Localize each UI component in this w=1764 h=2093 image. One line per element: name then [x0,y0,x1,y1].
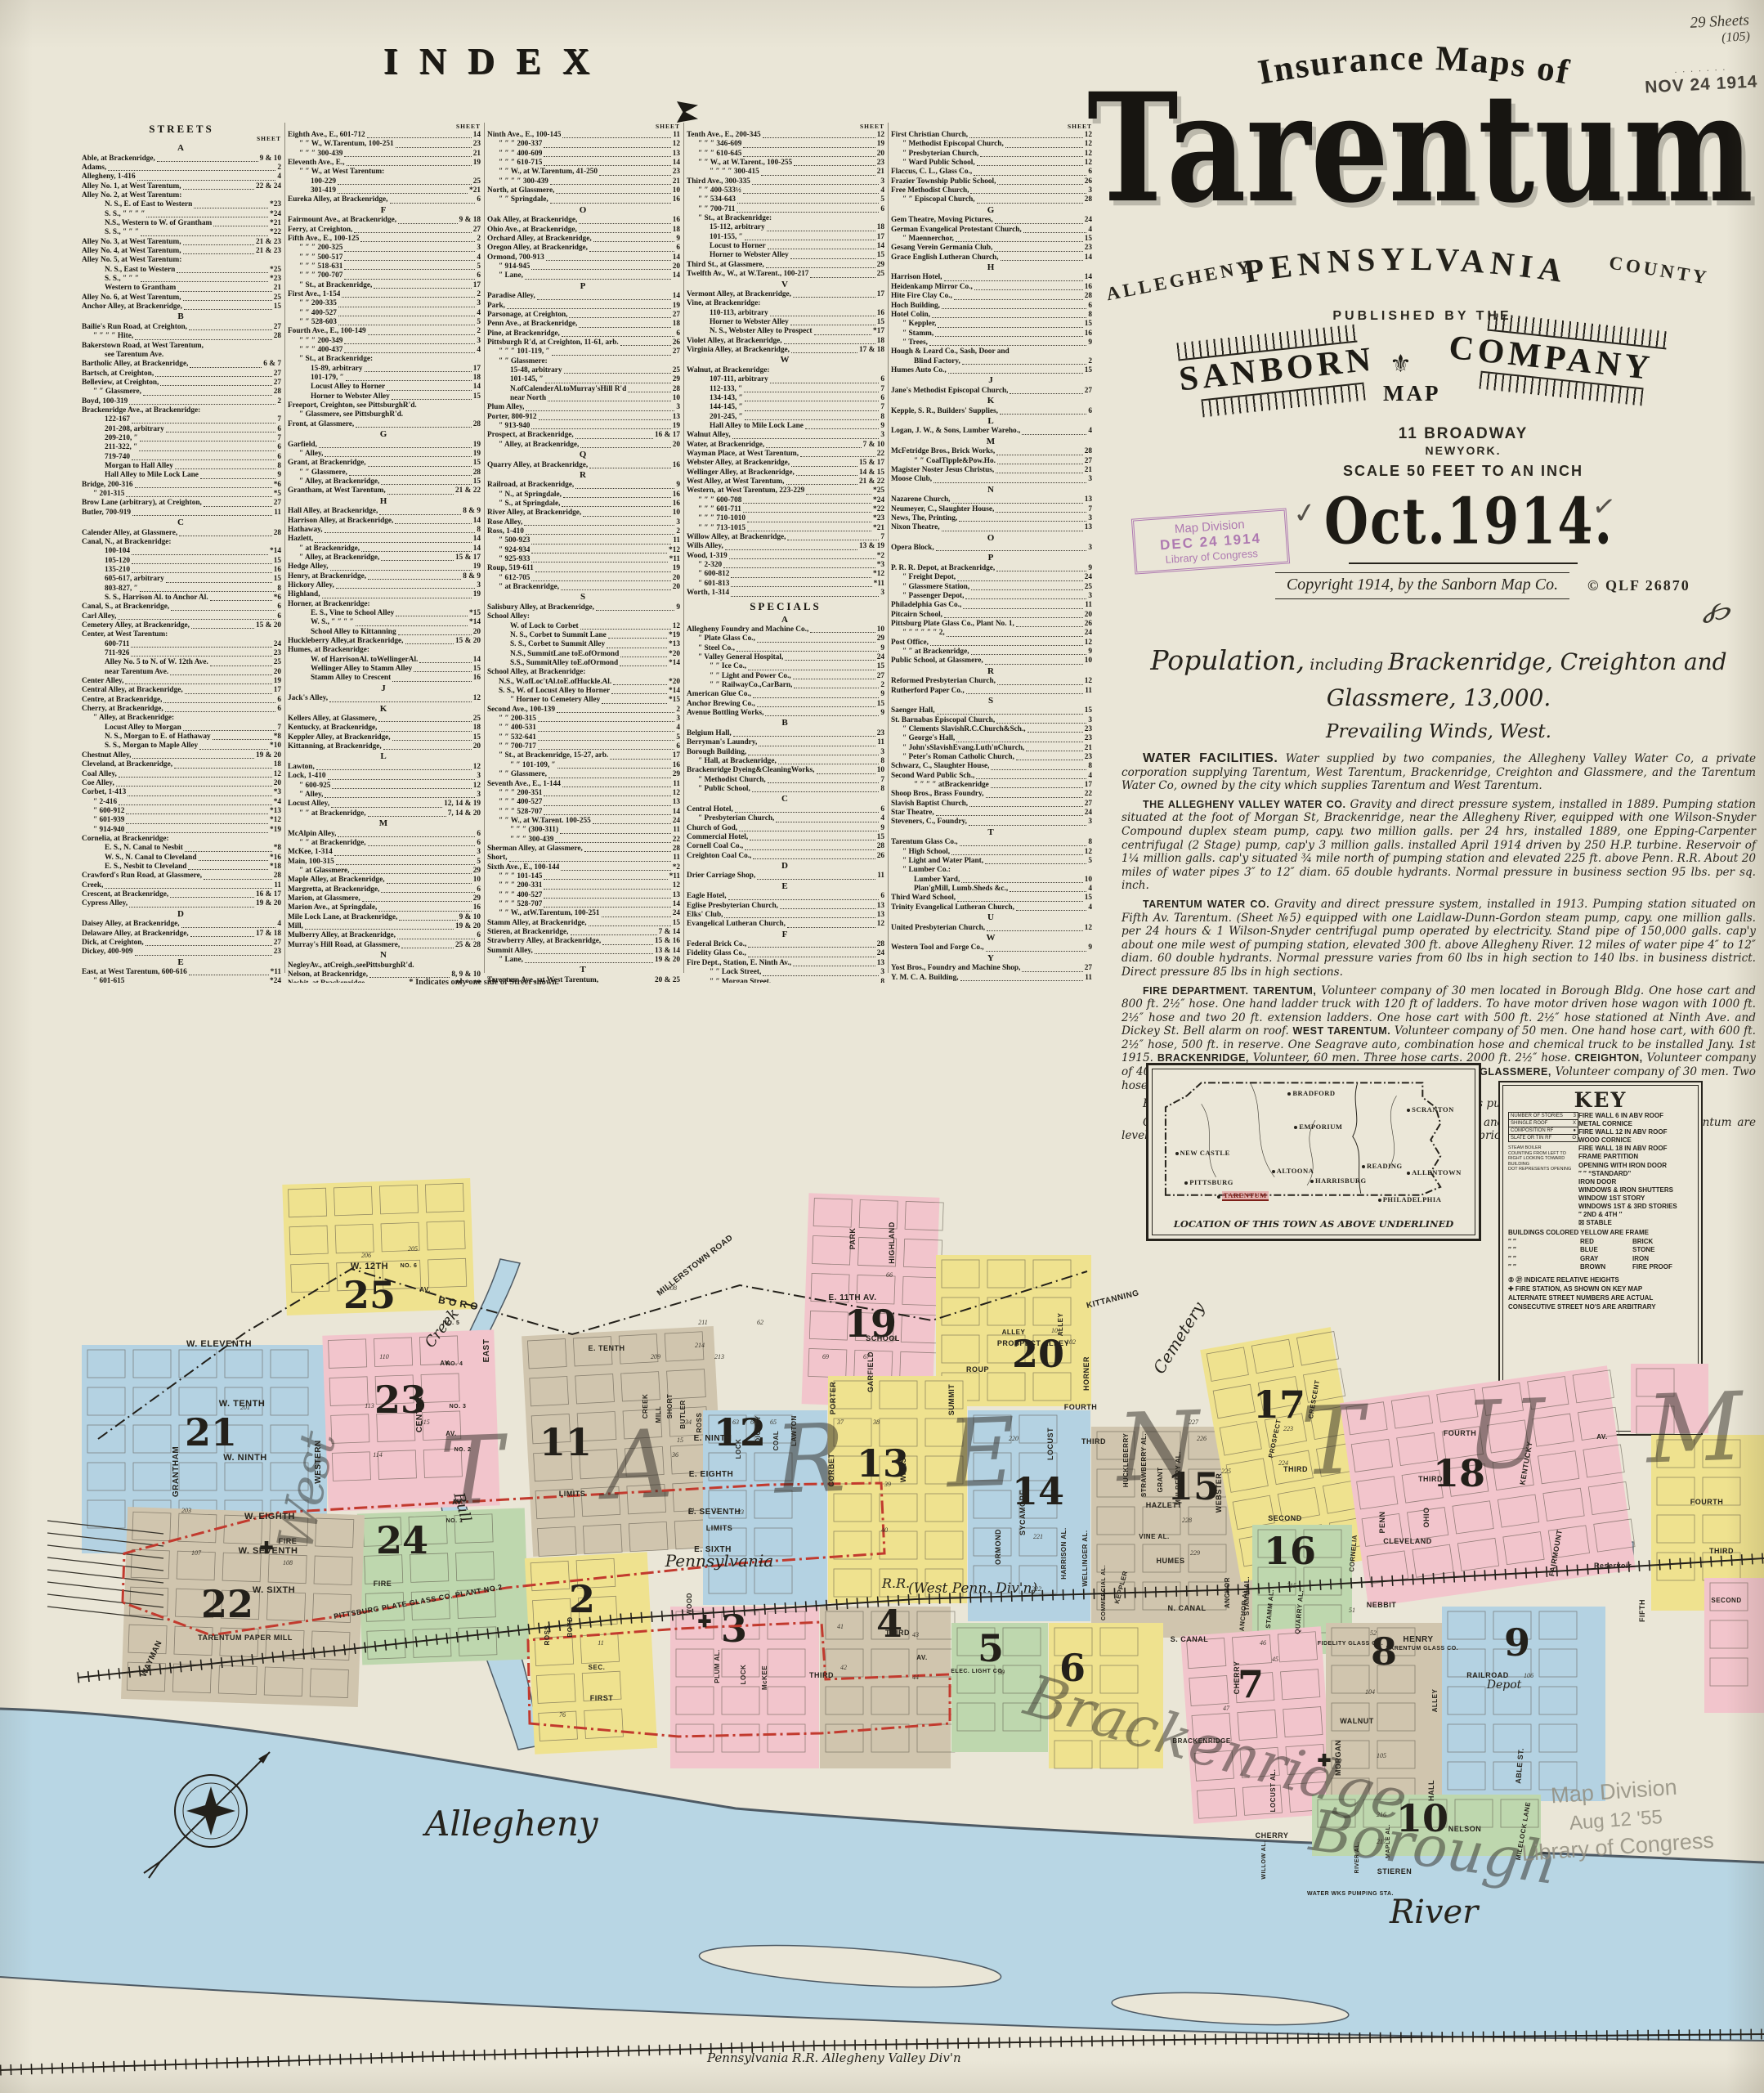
street-label: CREEK [642,1394,649,1419]
dot-leader [806,494,871,495]
index-entry: E. S., N. Canal to Nesbit*8 [82,844,281,853]
index-entry: Hoch Building,6 [891,302,1092,311]
index-entry: E. S., Nesbit to Cleveland*18 [82,863,281,872]
dot-leader [140,591,276,592]
index-entry: Drier Carriage Shop,11 [687,872,884,881]
index-entry: ″ ″ Lock Street,3 [687,968,884,977]
entry-sheet-number: *3 [877,561,884,570]
index-entry: Highland,19 [288,590,481,599]
index-entry: ″ 601-939*12 [82,816,281,825]
dot-leader [347,165,472,166]
index-entry: ″ at Brackenridge,14 [288,545,481,554]
index-entry: Jack's Alley,12 [288,694,481,703]
index-column: SHEETTenth Ave., E., 200-34512″ ″ ″ 346-… [687,123,884,983]
entry-sheet-number: 15 & 17 [455,554,481,562]
entry-name: NegleyAv., atCreigh.,seePittsburghR'd. [288,961,414,970]
dot-leader [544,156,670,157]
entry-sheet-number: 25 [673,366,680,375]
entry-name: N.S., W.ofLoc'tAl.toE.ofHuckle.Al. [499,678,611,687]
dot-leader [531,544,671,545]
entry-sheet-number: 8 [1088,311,1092,320]
index-entry: Ninth Ave., E., 100-14511 [487,131,680,140]
entry-name: Ninth Ave., E., 100-145 [487,131,561,140]
dot-leader [531,269,670,270]
entry-sheet-number: 20 [673,574,680,583]
index-entry: Alley No. 5, at West Tarentum: [82,256,281,265]
index-entry: Western Tool and Forge Co.,9 [891,943,1092,952]
river-label: River [1389,1894,1480,1931]
street-label: STRAWBERRY AL. [1140,1433,1148,1497]
entry-name: Harrison Hotel, [891,273,942,282]
index-entry: ″ ″ ″ 700-7076 [288,271,481,280]
dot-leader [767,231,875,231]
entry-sheet-number: 17 & 18 [859,346,884,355]
index-entry: ″ Freight Depot,24 [891,573,1092,582]
index-entry: ″ 924-934*12 [487,546,680,555]
entry-sheet-number: 16 [673,461,680,470]
entry-sheet-number: 24 [1085,809,1092,818]
block-number: 36 [671,1451,678,1459]
index-entry: Boyd, 100-3192 [82,397,281,406]
index-entry: Nixon Theatre,13 [891,523,1092,532]
index-entry: 201-208, arbitrary6 [82,425,281,434]
entry-sheet-number: 24 [1085,629,1092,638]
dot-leader [743,512,871,513]
entry-sheet-number: 19 [673,302,680,311]
dot-leader [935,336,1083,337]
index-entry: ″ Plate Glass Co.,29 [687,634,884,643]
sheet-column-label: SHEET [687,123,884,131]
entry-name: 101-179, ″ [311,374,344,383]
index-entry: N. S., Webster Alley to Prospect*17 [687,327,884,336]
entry-name: Stamm Alley to Crescent [311,674,391,683]
entry-sheet-number: *11 [669,555,680,564]
entry-sheet-number: 23 [1085,734,1092,743]
entry-name: Railroad, at Brackenridge, [487,481,574,490]
dot-leader [183,189,254,190]
street-label: SEC. [589,1664,606,1671]
entry-name: Belleview, at Creighton, [82,379,159,388]
dot-leader [770,316,875,316]
entry-name: Post Office, [891,639,929,648]
index-entry: School Alley, at Brackenridge: [487,668,680,677]
rule [1349,562,1578,564]
index-entry: P. R. R. Depot, at Brackenridge,9 [891,564,1092,573]
entry-name: ″ ″ 400-527 [299,309,337,318]
entry-name: Church of God, [687,824,737,833]
entry-sheet-number: 10 [1085,876,1092,885]
entry-sheet-number: *6 [274,481,281,490]
entry-sheet-number: 8 [880,785,884,794]
block-number: 223 [1283,1425,1293,1432]
specials-header: SPECIALS [687,598,884,615]
index-entry: ″ ″ ″ 400-52713 [487,891,680,900]
index-entry: Alley No. 1, at West Tarentum,22 & 24 [82,182,281,191]
street-label: WATER WKS PUMPING STA. [1307,1891,1394,1897]
entry-name: Humes Auto Co., [891,366,947,375]
index-entry: ″ Valley General Hospital,24 [687,653,884,662]
entry-name: Cornelia, at Brackenridge: [82,835,169,844]
dot-leader [747,531,871,531]
entry-sheet-number: 29 [673,770,680,779]
index-section-letter: W [891,933,1092,944]
index-entry: W. S., ″ ″ ″ ″*14 [288,618,481,627]
entry-name: Heidenkamp Mirror Co., [891,283,973,292]
index-entry: Center, at West Tarentum: [82,630,281,639]
entry-name: Seventh Ave., E., 1-144 [487,780,561,789]
street-label: HARRISON AL. [1060,1527,1068,1579]
entry-sheet-number: *23 [270,275,281,284]
entry-name: Tenth Ave., E., 200-345 [687,131,761,140]
entry-name: Central Hotel, [687,805,733,814]
dot-leader [344,251,475,252]
entry-sheet-number: *23 [873,514,884,523]
dot-leader [757,879,875,880]
index-entry: River Alley, at Brackenridge,10 [487,509,680,518]
entry-sheet-number: 9 & 18 [459,216,481,225]
dot-leader [108,170,275,171]
dot-leader [190,367,262,368]
index-entry: 144-145, ″7 [687,403,884,412]
index-entry: Nazarene Church,13 [891,495,1092,504]
dot-leader [210,666,272,666]
index-entry: Vermont Alley, at Brackenridge,17 [687,290,884,299]
index-entry: Central Alley, at Brackenridge,17 [82,686,281,695]
dot-leader [745,240,875,240]
dot-leader [970,193,1086,194]
entry-name: Adams, [82,164,106,173]
dot-leader [1022,434,1086,435]
index-entry: Bartholic Alley, at Brackenridge,6 & 7 [82,360,281,369]
entry-sheet-number: *11 [874,580,884,589]
index-entry: West Alley, at West Tarentum,21 & 22 [687,477,884,486]
entry-name: ″ Alley, at Brackenridge, [499,441,579,450]
entry-sheet-number: 7 [277,415,281,424]
entry-name: Walnut, at Brackenridge: [687,366,770,375]
index-entry: 100-104*14 [82,547,281,556]
dot-leader [996,571,1086,571]
street-label: NEBBIT [1367,1601,1397,1609]
index-entry: Maple Alley, at Brackenridge,10 [288,876,481,885]
dot-leader [731,577,871,578]
dot-leader [200,478,275,479]
dot-leader [322,598,472,598]
entry-name: Henry, at Brackenridge, [288,572,366,581]
entry-name: ″ 201-315 [93,490,124,499]
dot-leader [980,156,1082,157]
entry-sheet-number: 12 [274,770,281,779]
entry-sheet-number: 11 [1085,687,1092,696]
dot-leader [185,851,272,852]
index-entry: Penn Ave., at Brackenridge,18 [487,320,680,329]
entry-name: ″ Horner to Cemetery Alley [510,696,600,705]
entry-name: Locust to Horner [710,242,766,251]
state-title: PENNSYLVANIA [1202,239,1610,304]
dot-leader [957,580,1083,581]
entry-name: Stieren, at Brackenridge, [487,928,569,937]
entry-name: Alley No. 5, at West Tarentum: [82,256,181,265]
entry-name: S.S., SummitAlley toE.ofOrmond [510,659,618,668]
entry-name: ″ ″ at Brackenridge, [299,839,366,848]
index-section-letter: P [891,553,1092,564]
index-entry: Murray's Hill Road, at Glassmere,25 & 28 [288,941,481,950]
index-entry: Hall Alley to Mile Lock Lane9 [82,471,281,480]
index-entry: ″ ″ W., atW.Tarentum, 100-25124 [487,909,680,918]
index-entry: Huckleberry Alley,at Brackenridge,15 & 2… [288,637,481,646]
index-entry: ″ St., at Brackenridge,17 [288,281,481,290]
entry-sheet-number: 10 [473,876,481,885]
entry-name: Brackenridge Ave., at Brackenridge: [82,406,200,415]
index-entry: ″ 201-315*5 [82,490,281,499]
entry-name: Plan'gMill, Lumb.Sheds &c., [914,885,1008,894]
entry-name: ″ Stamm, [902,329,933,338]
entry-sheet-number: 14 & 15 [859,468,884,477]
entry-name: Hathaway, [288,526,323,535]
street-label: ALLEY [1431,1688,1439,1712]
index-entry: 134-143, ″6 [687,394,884,403]
dot-leader [757,706,875,707]
index-entry: First Ave., 1-1542 [288,290,481,299]
dot-leader [736,212,879,213]
entry-sheet-number: *25 [873,486,884,495]
entry-name: ″ St., at Brackenridge, 15-27, arb. [499,751,608,760]
entry-sheet-number: *25 [270,266,281,275]
index-section-letter: S [487,592,680,603]
entry-sheet-number: 18 [473,724,481,733]
dot-leader [338,307,475,307]
entry-name: Trinity Evangelical Lutheran Church, [891,903,1014,912]
dot-leader [599,175,671,176]
street-label: GRANT [1157,1468,1164,1493]
street-label: WESTERN [314,1440,323,1484]
entry-name: Locust Alley, [288,800,329,809]
entry-name: ″ S., at Springdale, [499,500,560,509]
dot-leader [1016,626,1083,627]
dot-leader [544,879,667,880]
dot-leader [817,773,875,774]
entry-name: Harrison Alley, at Brackenridge, [288,517,393,526]
index-section-letter: R [891,666,1092,678]
entry-name: E. S., N. Canal to Nesbit [105,844,183,853]
index-entry: Locust Alley,12, 14 & 19 [288,800,481,809]
street-label: FIRE [279,1537,298,1545]
street-label: SYCAMORE [1019,1490,1027,1535]
street-label: KITTANNING [1086,1289,1140,1311]
index-entry: Horner to Webster Alley15 [687,318,884,327]
entry-sheet-number: 7, 14 & 20 [448,809,481,818]
street-label: LAWTON [790,1415,798,1446]
entry-name: ″ ″ W., W.Tarentum, 100-251 [299,140,394,149]
street-label: COMMERCIAL AL. [1101,1565,1107,1620]
street-label: WEBSTER [1215,1473,1223,1513]
index-entry: Virginia Alley, at Brackenridge,17 & 18 [687,346,884,355]
dot-leader [166,582,272,583]
index-entry: 100-22925 [288,177,481,186]
county-right: COUNTY [1608,252,1711,289]
dot-leader [344,269,475,270]
street-label: N. CANAL [1168,1604,1207,1612]
entry-name: Main, 100-315 [288,858,334,867]
index-entry: 211-322, ″6 [82,443,281,452]
index-entry: ″ ″ Glassmere,29 [487,770,680,779]
dot-leader [183,253,254,254]
entry-name: Hazlett, [288,535,313,544]
entry-name: Quarry Alley, at Brackenridge, [487,461,588,470]
dot-leader [191,628,254,629]
index-entry: Heidenkamp Mirror Co.,16 [891,283,1092,292]
entry-sheet-number: 2 [477,235,481,244]
entry-name: Garfield, [288,441,317,450]
entry-name: Frazier Township Public School, [891,177,996,186]
index-entry: E. S., Vine to School Alley*15 [288,609,481,618]
dot-leader [194,208,268,208]
entry-name: ″ ″ at Brackenridge, [299,809,366,818]
entry-sheet-number: 12 [673,789,680,798]
district-number-7: 7 [1238,1662,1264,1706]
entry-name: Salisbury Alley, at Brackenridge, [487,603,594,612]
index-entry: Dickey, 400-90923 [82,948,281,957]
dot-leader [188,869,268,870]
dot-leader [189,329,272,330]
entry-name: ″ ″ RailwayCo.,CarBarn, [710,681,792,690]
index-entry: Allegheny Foundry and Machine Co.,10 [687,625,884,634]
index-entry: ″ Peter's Roman Catholic Church,23 [891,753,1092,762]
entry-sheet-number: 3 [676,715,680,724]
entry-sheet-number: 19 [473,159,481,168]
entry-name: 201-208, arbitrary [105,425,164,434]
index-entry: Shoop Bros., Brass Foundry,22 [891,790,1092,799]
entry-name: Pitcairn School, [891,611,942,620]
index-entry: 15-89, arbitrary17 [288,365,481,374]
entry-name: Horner, at Brackenridge: [288,600,370,609]
dot-leader [969,806,1083,807]
index-entry: Keppler Alley, at Brackenridge,15 [288,733,481,742]
dot-leader [961,882,1082,883]
entry-name: ″ ″ Glassmere: [499,357,548,366]
entry-sheet-number: 15 [473,459,481,468]
entry-sheet-number: 9 [880,644,884,653]
entry-sheet-number: 16 & 17 [655,431,680,440]
entry-name: Crescent, at Brackenridge, [82,890,168,899]
ink-blot [677,101,698,123]
entry-name: Wayman Place, at West Tarentum, [687,450,799,459]
entry-name: Vermont Alley, at Brackenridge, [687,290,791,299]
index-entry: Gesang Verein Germania Club,23 [891,244,1092,253]
entry-name: McKee, 1-314 [288,848,333,857]
entry-name: Eglise Presbyterian Church, [687,902,778,911]
dot-leader [805,428,879,429]
dot-leader [383,749,472,750]
dot-leader [395,523,471,524]
index-section-letter: F [288,205,481,217]
index-section-letter: O [891,533,1092,545]
entry-name: ″ 914-940 [93,826,124,835]
dot-leader [791,352,857,353]
dot-leader [969,825,1086,826]
entry-sheet-number: 27 [673,347,680,356]
dot-leader [119,777,272,778]
street-label: SHORT [666,1394,674,1419]
index-entry: Reformed Presbyterian Church,12 [891,677,1092,686]
entry-name: ″ St., at Brackenridge: [698,214,772,223]
street-label: TARENTUM GLASS CO. [1386,1646,1458,1652]
entry-name: Locust Alley to Horner [311,383,385,392]
block-number: 216 [1377,1811,1386,1818]
entry-name: ″ 2-416 [93,798,117,807]
dot-leader [146,945,272,946]
dot-leader [794,165,875,166]
dot-leader [786,484,858,485]
dot-leader [199,860,269,861]
entry-sheet-number: 12 [877,920,884,929]
company-name-map: MAP [1383,381,1440,406]
entry-name: Reformed Presbyterian Church, [891,677,996,686]
entry-name: Grant, at Brackenridge, [288,459,366,468]
dot-leader [602,703,667,704]
index-entry: ″ ″ CoalTipple&Pow.Ho.27 [891,457,1092,466]
index-entry: Ferry, at Creighton,27 [288,226,481,235]
entry-sheet-number: 27 [274,323,281,332]
index-entry: ″ ″ Glassmere,28 [82,388,281,397]
index-section-letter: B [687,718,884,729]
index-entry: Creighton Coal Co.,26 [687,852,884,861]
dot-leader [374,288,471,289]
entry-sheet-number: 7 [880,403,884,412]
index-entry: N.S., SummitLane toE.ofOrmond*20 [487,650,680,659]
entry-sheet-number: 20 [1085,611,1092,620]
index-entry: Margretta, at Brackenridge,6 [288,885,481,894]
index-entry: McKee, 1-3143 [288,848,481,857]
dot-leader [166,432,276,432]
entry-name: Hough & Leard Co., Sash, Door and [891,347,1010,356]
entry-sheet-number: 4 [277,173,281,182]
entry-sheet-number: 19 & 20 [655,956,680,965]
street-label: NO. 6 [401,1263,418,1269]
index-entry: ″ ″ ″ ″ 300-43921 [487,177,680,186]
entry-name: ″ ″ ″ 528-707 [499,900,542,909]
entry-name: ″ Alley, at Brackenridge, [299,554,379,562]
block-number: 69 [822,1353,829,1360]
index-entry: ″ 925-933*11 [487,555,680,564]
index-entry: Kepple, S. R., Builders' Supplies,6 [891,407,1092,416]
entry-sheet-number: 13 [673,798,680,807]
entry-name: Lawton, [288,763,315,772]
dot-leader [139,450,275,451]
dot-leader [157,161,258,162]
dot-leader [213,226,268,226]
dot-leader [184,309,272,310]
entry-sheet-number: 14 [673,159,680,168]
index-entry: ″ Clements SlavishR.C.Church&Sch.,23 [891,725,1092,734]
entry-name: P. R. R. Depot, at Brackenridge, [891,564,995,573]
index-column: SHEETEighth Ave., E., 601-71214″ ″ W., W… [288,123,481,983]
entry-sheet-number: 23 [673,168,680,177]
dot-leader [610,759,670,760]
entry-sheet-number: *16 [270,854,281,863]
index-entry: 711-92623 [82,649,281,658]
dot-leader [392,681,472,682]
index-entry: German Evangelical Protestant Church,4 [891,226,1092,235]
entry-name: 201-245, ″ [710,413,743,422]
entry-sheet-number: 2 [277,397,281,406]
index-entry: Main, 100-3155 [288,858,481,867]
entry-name: Horner to Webster Alley [710,251,789,260]
entry-name: near Tarentum Ave. [105,668,168,677]
entry-sheet-number: 24 [877,653,884,662]
index-entry: Federal Brick Co.,28 [687,940,884,949]
entry-sheet-number: 3 [1088,716,1092,725]
entry-name: Horner to Webster Alley [710,318,789,327]
